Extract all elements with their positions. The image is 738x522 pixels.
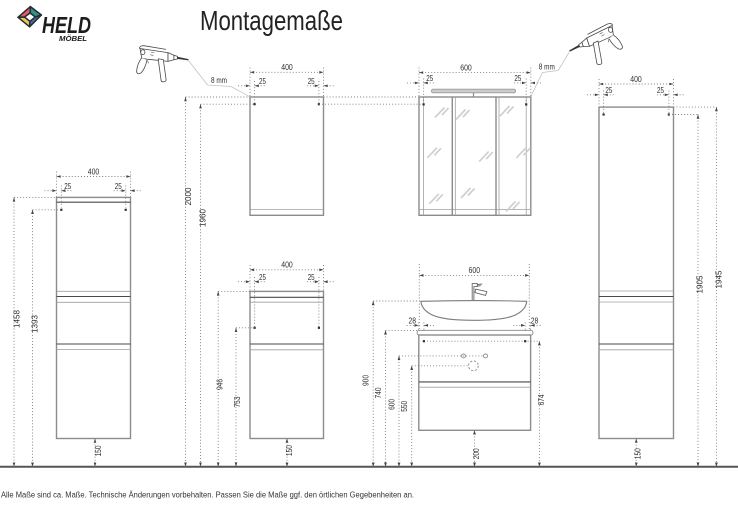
svg-text:400: 400 [281,63,293,72]
svg-text:25: 25 [308,273,315,282]
svg-text:Montagemaße: Montagemaße [200,5,343,36]
svg-text:1960: 1960 [199,208,208,227]
svg-text:674: 674 [537,394,546,405]
svg-text:25: 25 [259,77,266,86]
svg-text:8 mm: 8 mm [211,76,227,85]
svg-text:25: 25 [605,86,612,95]
svg-text:150: 150 [285,445,294,456]
svg-text:1945: 1945 [715,270,724,289]
svg-text:25: 25 [514,74,521,83]
svg-text:600: 600 [469,266,481,275]
svg-text:25: 25 [308,77,315,86]
svg-text:150: 150 [94,445,103,456]
svg-text:2000: 2000 [184,187,193,206]
svg-text:400: 400 [630,75,642,84]
svg-text:1905: 1905 [696,275,705,294]
svg-text:550: 550 [400,400,409,411]
svg-text:400: 400 [281,261,293,270]
svg-text:400: 400 [88,167,100,176]
svg-text:200: 200 [472,448,481,459]
svg-text:25: 25 [657,86,664,95]
svg-text:600: 600 [460,63,472,72]
svg-text:740: 740 [374,387,383,398]
svg-text:946: 946 [215,379,224,390]
svg-text:150: 150 [633,448,642,459]
svg-text:900: 900 [362,375,371,386]
svg-text:28: 28 [409,317,417,326]
svg-text:600: 600 [387,398,396,409]
svg-text:25: 25 [259,273,266,282]
svg-text:8 mm: 8 mm [539,63,555,72]
svg-text:25: 25 [426,74,433,83]
svg-text:753: 753 [233,396,242,407]
svg-text:1458: 1458 [13,309,22,328]
svg-text:1393: 1393 [30,314,39,333]
svg-text:25: 25 [115,182,122,191]
svg-text:25: 25 [64,182,71,191]
svg-text:Alle Maße sind ca. Maße. Techn: Alle Maße sind ca. Maße. Technische Ände… [1,491,414,500]
svg-text:28: 28 [531,317,539,326]
svg-text:MÖBEL: MÖBEL [59,34,87,43]
